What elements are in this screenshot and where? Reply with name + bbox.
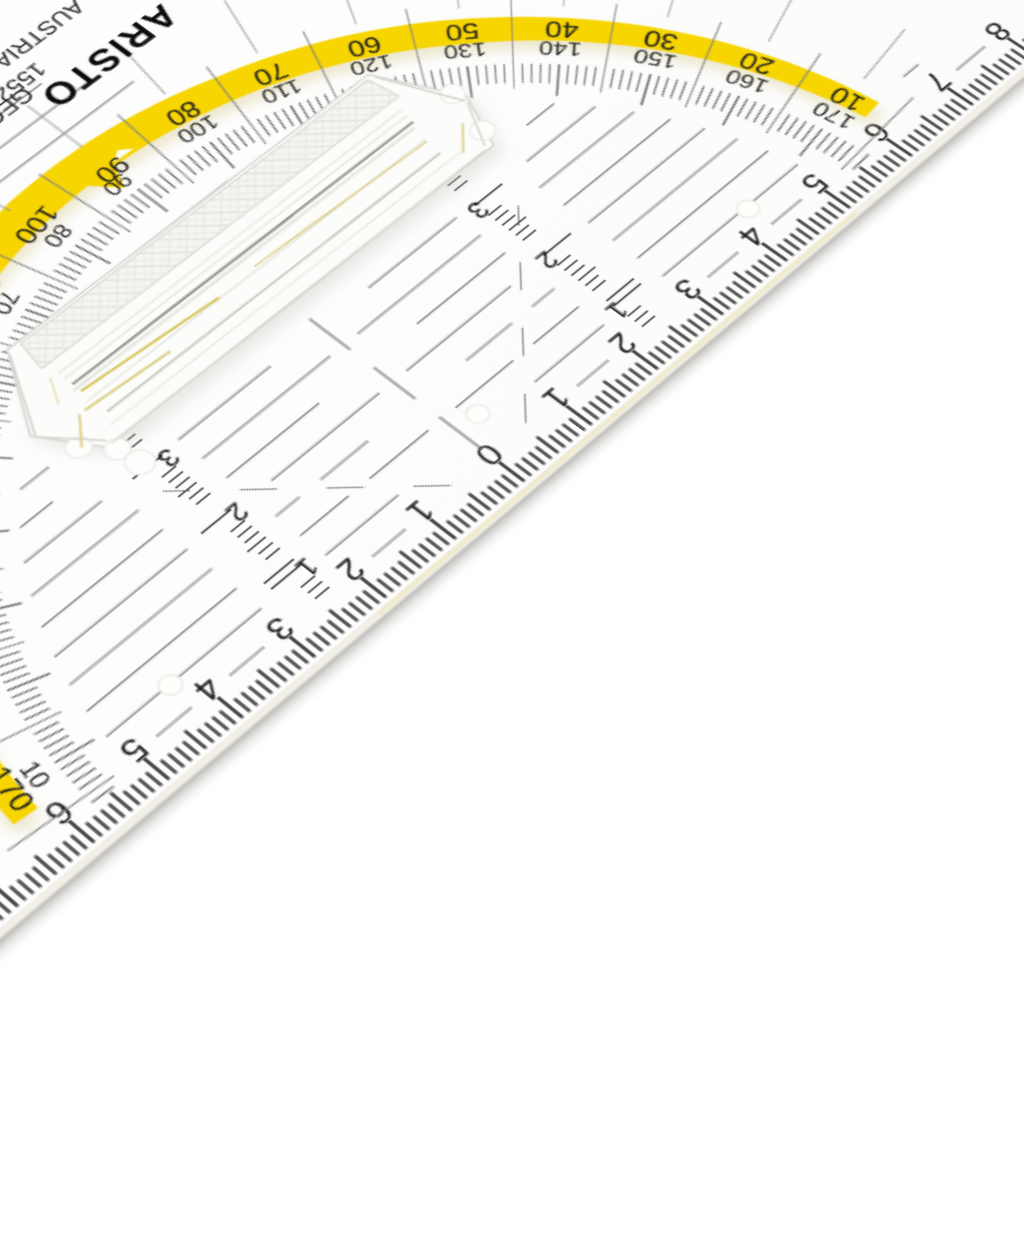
- svg-text:140: 140: [538, 36, 582, 59]
- svg-text:130: 130: [442, 38, 488, 63]
